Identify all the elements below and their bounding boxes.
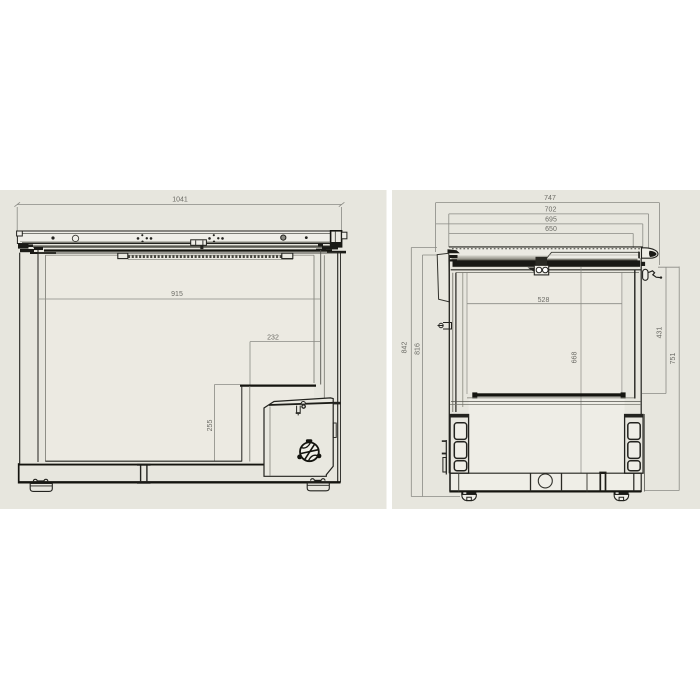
- svg-text:915: 915: [171, 291, 183, 298]
- svg-text:232: 232: [267, 334, 279, 341]
- svg-text:255: 255: [207, 420, 214, 432]
- svg-text:1041: 1041: [172, 197, 188, 204]
- svg-text:431: 431: [657, 327, 664, 339]
- svg-text:747: 747: [544, 195, 556, 202]
- svg-text:702: 702: [545, 207, 557, 214]
- svg-text:816: 816: [415, 343, 422, 355]
- svg-text:751: 751: [670, 353, 677, 365]
- svg-text:528: 528: [538, 297, 550, 304]
- svg-text:842: 842: [402, 342, 409, 354]
- svg-text:695: 695: [545, 217, 557, 224]
- svg-text:668: 668: [572, 352, 579, 364]
- svg-text:650: 650: [545, 226, 557, 233]
